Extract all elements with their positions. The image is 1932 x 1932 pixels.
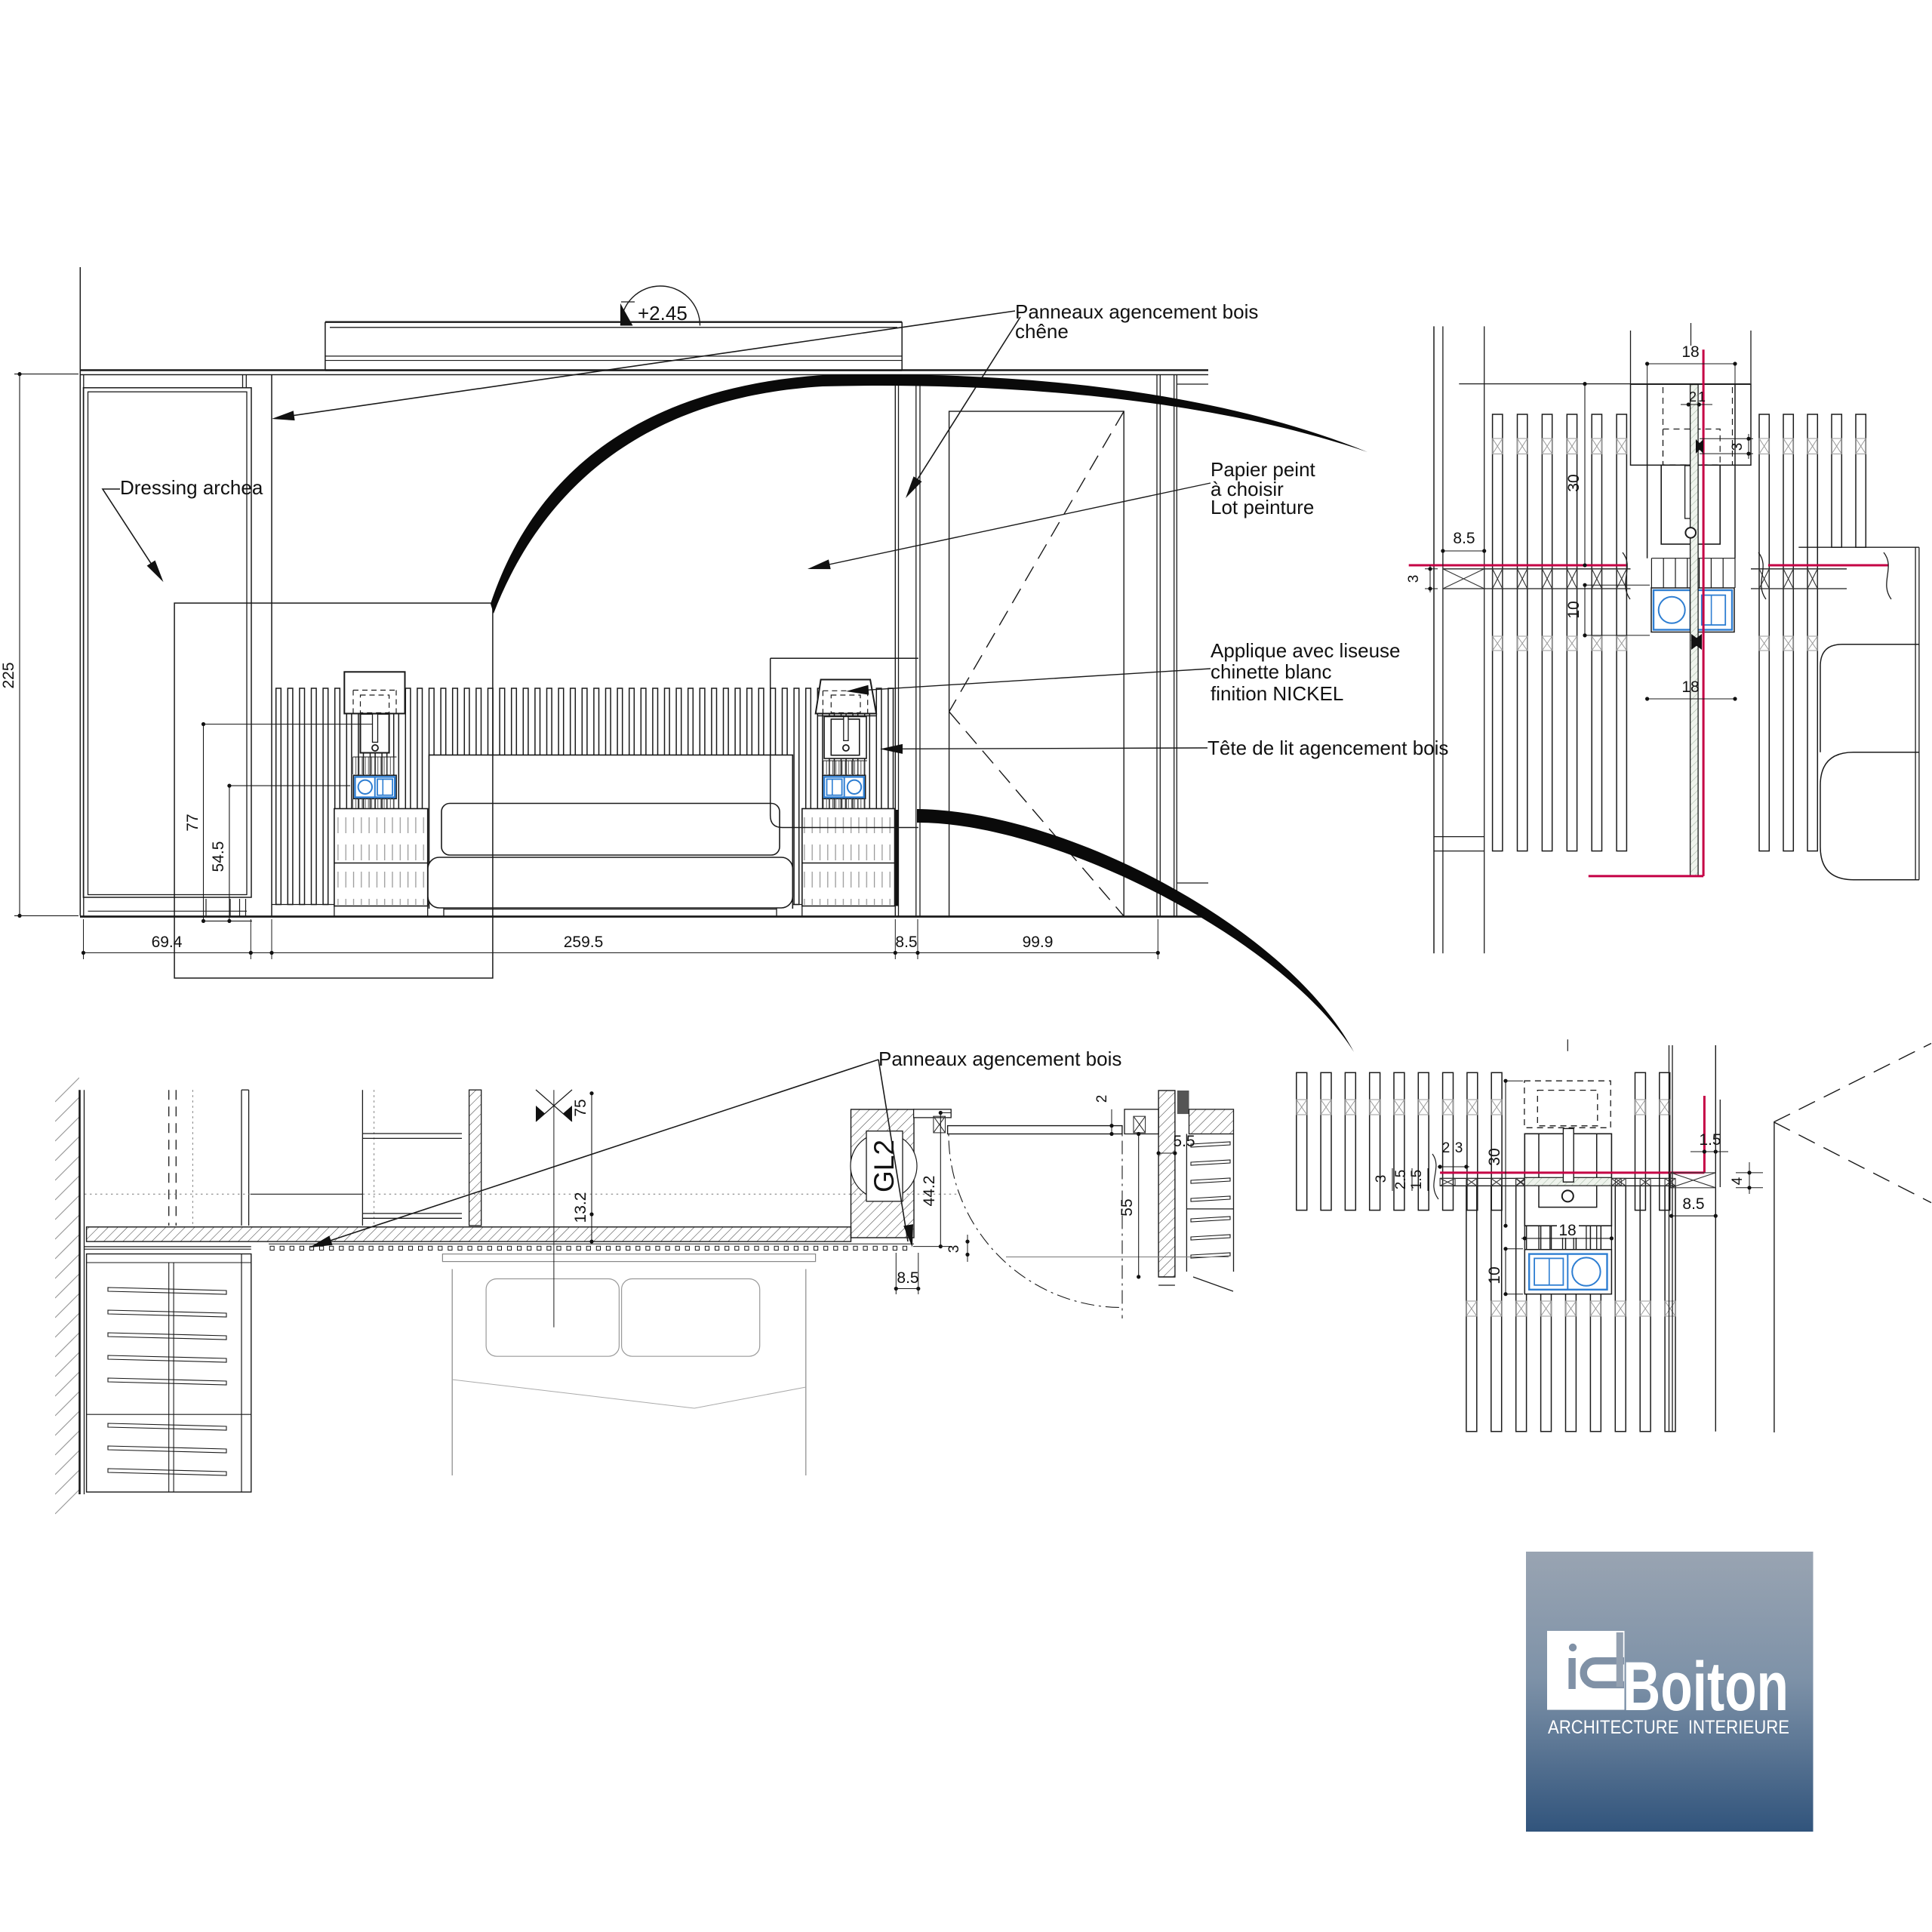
svg-text:3: 3 (1406, 575, 1422, 583)
svg-text:Dressing archea: Dressing archea (120, 476, 263, 499)
svg-text:8.5: 8.5 (895, 934, 917, 951)
svg-text:GL2: GL2 (869, 1140, 900, 1192)
svg-text:Tête de lit agencement bois: Tête de lit agencement bois (1207, 737, 1448, 759)
svg-text:finition NICKEL: finition NICKEL (1211, 682, 1343, 705)
svg-text:225: 225 (0, 662, 17, 688)
svg-text:3: 3 (946, 1245, 962, 1254)
svg-text:2: 2 (1689, 389, 1697, 405)
svg-text:Applique avec liseuse: Applique avec liseuse (1211, 639, 1401, 662)
svg-text:2: 2 (1442, 1140, 1451, 1156)
svg-text:1.5: 1.5 (1409, 1170, 1425, 1189)
svg-text:8.5: 8.5 (897, 1269, 918, 1287)
svg-text:18: 18 (1681, 343, 1699, 361)
svg-text:99.9: 99.9 (1023, 934, 1054, 951)
svg-text:2: 2 (1094, 1095, 1110, 1103)
svg-text:1: 1 (1698, 389, 1706, 405)
svg-text:5.5: 5.5 (1173, 1133, 1195, 1150)
svg-text:55: 55 (1118, 1198, 1136, 1216)
svg-text:3: 3 (1730, 443, 1746, 451)
svg-text:13.2: 13.2 (572, 1192, 589, 1223)
svg-text:8.5: 8.5 (1682, 1195, 1704, 1213)
svg-text:69.4: 69.4 (152, 934, 183, 951)
svg-text:Lot peinture: Lot peinture (1211, 496, 1314, 518)
svg-text:Panneaux agencement bois: Panneaux agencement bois (878, 1048, 1121, 1070)
svg-text:18: 18 (1558, 1222, 1576, 1239)
svg-text:+2.45: +2.45 (638, 302, 688, 325)
svg-text:8.5: 8.5 (1453, 530, 1475, 547)
svg-text:2.5: 2.5 (1393, 1170, 1409, 1189)
svg-text:18: 18 (1681, 678, 1699, 696)
svg-text:54.5: 54.5 (210, 841, 227, 872)
svg-text:chêne: chêne (1015, 320, 1069, 343)
svg-text:44.2: 44.2 (921, 1176, 938, 1207)
svg-text:3: 3 (1455, 1140, 1463, 1156)
svg-text:259.5: 259.5 (564, 934, 604, 951)
svg-text:75: 75 (572, 1099, 589, 1116)
svg-text:ARCHITECTURE INTERIEURE: ARCHITECTURE INTERIEURE (1548, 1717, 1789, 1738)
svg-text:Boiton: Boiton (1623, 1648, 1789, 1725)
svg-text:77: 77 (184, 814, 202, 831)
svg-text:10: 10 (1565, 601, 1583, 618)
svg-text:10: 10 (1486, 1266, 1503, 1284)
svg-text:30: 30 (1565, 474, 1583, 491)
svg-text:chinette blanc: chinette blanc (1211, 660, 1331, 683)
svg-text:4: 4 (1730, 1177, 1746, 1185)
svg-text:1.5: 1.5 (1699, 1131, 1721, 1149)
svg-text:30: 30 (1486, 1148, 1503, 1165)
svg-text:3: 3 (1374, 1175, 1389, 1183)
